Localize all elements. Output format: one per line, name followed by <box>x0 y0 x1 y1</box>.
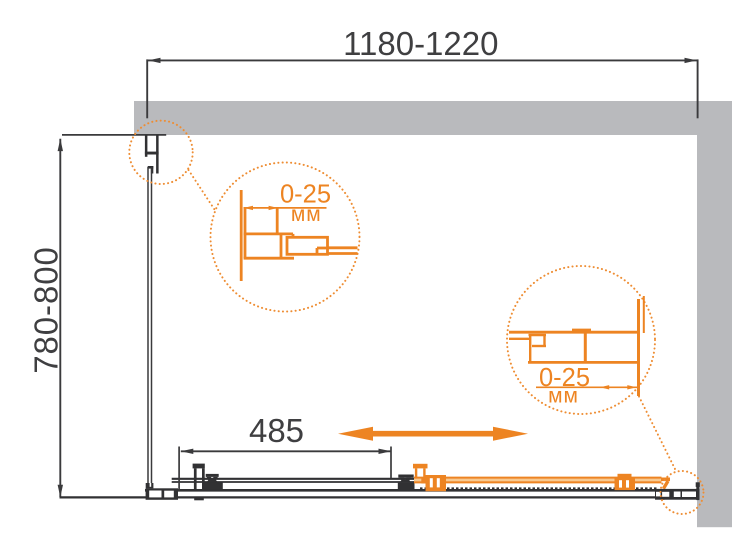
svg-text:1180-1220: 1180-1220 <box>343 25 498 62</box>
svg-text:мм: мм <box>291 203 322 226</box>
svg-text:мм: мм <box>548 385 579 408</box>
svg-text:780-800: 780-800 <box>28 246 65 373</box>
svg-text:485: 485 <box>249 412 304 449</box>
